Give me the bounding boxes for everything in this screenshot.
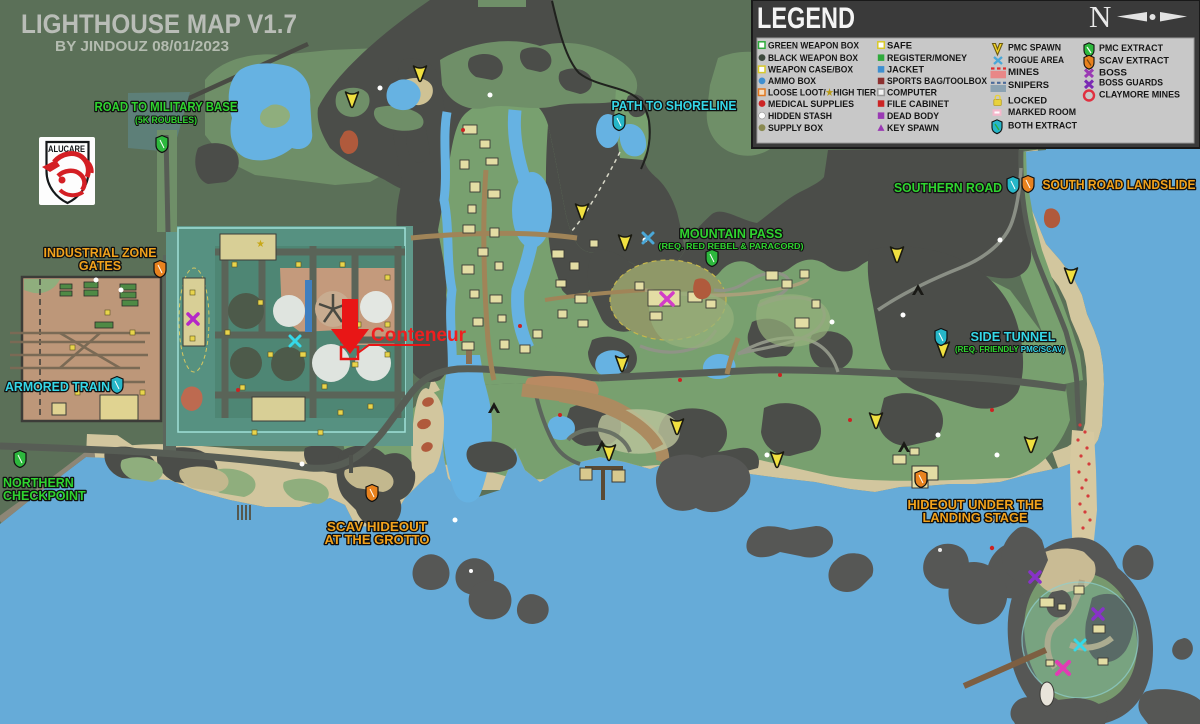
svg-text:INDUSTRIAL ZONE: INDUSTRIAL ZONE (44, 246, 157, 260)
svg-text:(5K ROUBLES): (5K ROUBLES) (135, 115, 197, 125)
svg-text:LANDING STAGE: LANDING STAGE (923, 511, 1028, 525)
svg-text:SUPPLY BOX: SUPPLY BOX (768, 123, 824, 134)
svg-text:GREEN WEAPON BOX: GREEN WEAPON BOX (768, 40, 860, 51)
svg-text:PMC EXTRACT: PMC EXTRACT (1099, 43, 1163, 54)
svg-text:Conteneur: Conteneur (371, 325, 467, 346)
svg-text:COMPUTER: COMPUTER (887, 88, 937, 99)
svg-text:SOUTHERN ROAD: SOUTHERN ROAD (894, 180, 1002, 195)
svg-text:BOTH EXTRACT: BOTH EXTRACT (1008, 120, 1077, 131)
svg-text:LOOSE LOOT/★HIGH TIER: LOOSE LOOT/★HIGH TIER (768, 88, 876, 99)
svg-text:SCAV EXTRACT: SCAV EXTRACT (1099, 56, 1169, 67)
svg-text:SPORTS BAG/TOOLBOX: SPORTS BAG/TOOLBOX (887, 76, 988, 87)
svg-text:ROAD TO MILITARY BASE: ROAD TO MILITARY BASE (95, 99, 238, 114)
svg-text:ROGUE AREA: ROGUE AREA (1008, 55, 1064, 66)
svg-text:DEAD BODY: DEAD BODY (887, 111, 940, 122)
svg-text:MOUNTAIN PASS: MOUNTAIN PASS (680, 226, 783, 241)
svg-text:★: ★ (256, 239, 265, 250)
svg-text:SNIPERS: SNIPERS (1008, 80, 1049, 91)
svg-text:CHECKPOINT: CHECKPOINT (3, 489, 86, 503)
svg-text:LIGHTHOUSE MAP V1.7: LIGHTHOUSE MAP V1.7 (21, 9, 297, 39)
svg-text:JACKET: JACKET (887, 65, 924, 76)
svg-text:SIDE TUNNEL: SIDE TUNNEL (971, 329, 1056, 344)
svg-text:GATES: GATES (79, 259, 121, 273)
svg-text:HIDDEN STASH: HIDDEN STASH (768, 111, 832, 122)
svg-text:WEAPON CASE/BOX: WEAPON CASE/BOX (768, 65, 854, 76)
svg-text:N: N (1089, 0, 1111, 34)
svg-text:MARKED ROOM: MARKED ROOM (1008, 107, 1076, 118)
svg-text:LOCKED: LOCKED (1008, 95, 1047, 106)
svg-text:PATH TO SHORELINE: PATH TO SHORELINE (612, 99, 737, 113)
svg-text:ARMORED TRAIN: ARMORED TRAIN (5, 379, 110, 394)
svg-text:BLACK WEAPON BOX: BLACK WEAPON BOX (768, 53, 859, 64)
svg-text:MEDICAL SUPPLIES: MEDICAL SUPPLIES (768, 99, 854, 110)
svg-text:AMMO BOX: AMMO BOX (768, 76, 817, 87)
svg-text:KEY SPAWN: KEY SPAWN (887, 123, 939, 134)
svg-text:NORTHERN: NORTHERN (3, 476, 74, 490)
svg-text:SOUTH ROAD LANDSLIDE: SOUTH ROAD LANDSLIDE (1043, 178, 1196, 192)
svg-text:AT THE GROTTO: AT THE GROTTO (325, 533, 430, 547)
svg-text:FILE CABINET: FILE CABINET (887, 99, 949, 110)
svg-text:MINES: MINES (1008, 67, 1039, 78)
svg-text:HIDEOUT UNDER THE: HIDEOUT UNDER THE (908, 498, 1043, 512)
svg-text:(REQ. FRIENDLY PMC/SCAV): (REQ. FRIENDLY PMC/SCAV) (955, 345, 1065, 354)
svg-text:BOSS GUARDS: BOSS GUARDS (1099, 78, 1163, 89)
svg-text:SCAV HIDEOUT: SCAV HIDEOUT (327, 520, 427, 534)
svg-text:CLAYMORE MINES: CLAYMORE MINES (1099, 89, 1180, 100)
svg-text:PMC SPAWN: PMC SPAWN (1008, 43, 1061, 54)
svg-text:BY JINDOUZ 08/01/2023: BY JINDOUZ 08/01/2023 (55, 39, 229, 55)
svg-text:LEGEND: LEGEND (757, 2, 855, 35)
svg-text:SAFE: SAFE (887, 40, 912, 51)
svg-text:(REQ. RED REBEL & PARACORD): (REQ. RED REBEL & PARACORD) (659, 242, 804, 251)
svg-text:REGISTER/MONEY: REGISTER/MONEY (887, 53, 968, 64)
